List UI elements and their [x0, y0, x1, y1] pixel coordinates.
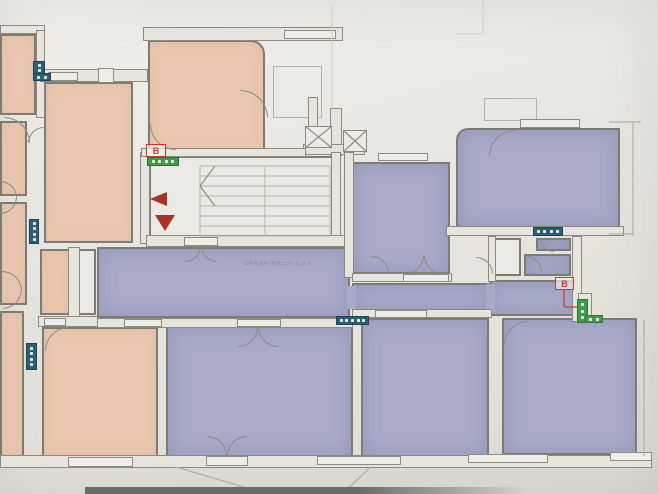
shaft-hatch-1: [305, 126, 332, 148]
shaft-hatch-2: [343, 130, 367, 152]
vent-marker: [585, 315, 603, 323]
window-middle-top: [378, 153, 428, 161]
marker-dot: [30, 347, 33, 350]
radiator-marker: [336, 316, 369, 325]
balcony-top-right: [484, 98, 537, 121]
marker-dot: [33, 233, 36, 236]
marker-dot: [556, 230, 559, 233]
marker-dot: [543, 230, 546, 233]
marker-dot: [30, 358, 33, 361]
marker-dot: [33, 222, 36, 225]
door-gap-stair: [184, 237, 218, 246]
window-corridor-1: [124, 319, 162, 327]
marker-dot: [340, 319, 343, 322]
shaft-left: [78, 249, 96, 315]
room-bottom-2-purple: [361, 318, 489, 457]
corridor-join-2: [486, 284, 495, 312]
marker-dot: [351, 319, 354, 322]
wall-left-shaft: [68, 247, 80, 317]
marker-dot: [38, 69, 41, 72]
marker-dot: [37, 76, 40, 79]
window-topmiddle: [284, 30, 336, 39]
marker-dot: [33, 238, 36, 241]
wall-bath-left: [488, 236, 496, 282]
window-topright: [520, 119, 580, 128]
b-label-right: B: [555, 277, 574, 290]
room-left-4: [0, 311, 24, 458]
room-top-right-purple: [456, 128, 620, 228]
room-top-left-partial: [0, 34, 36, 115]
window-bottom-3: [610, 452, 652, 461]
marker-dot: [152, 160, 155, 163]
door-arc: [2, 289, 22, 309]
wall-stair-right: [331, 152, 341, 238]
radiator-marker: [33, 73, 51, 81]
vent-marker: [147, 157, 179, 166]
door-gap-corridor-b1: [237, 319, 281, 327]
marker-dot: [158, 160, 161, 163]
stair-arrow-down: [155, 215, 175, 231]
marker-dot: [589, 318, 592, 321]
marker-dot: [581, 303, 584, 306]
marker-dot: [581, 316, 584, 319]
window-bottom-pink: [68, 457, 133, 467]
marker-dot: [30, 363, 33, 366]
radiator-marker: [26, 343, 37, 370]
room-bottom-1-purple: [166, 326, 353, 457]
marker-dot: [33, 227, 36, 230]
marker-dot: [357, 319, 360, 322]
door-gap-pink-bottom: [44, 318, 66, 326]
room-main-upper-pink: [44, 82, 133, 243]
window-bottom-1: [317, 456, 401, 465]
wall-stair-bottom: [146, 235, 352, 247]
marker-dot: [30, 352, 33, 355]
marker-dot: [165, 160, 168, 163]
radiator-marker: [29, 219, 39, 244]
door-arc: [28, 127, 44, 143]
wall-middle-left: [344, 152, 354, 278]
radiator-marker: [533, 227, 563, 236]
corridor-main: [97, 247, 350, 318]
corridor-join-1: [347, 286, 356, 309]
marker-dot: [581, 310, 584, 313]
marker-dot: [44, 76, 47, 79]
b-label-stairwell: B: [146, 144, 166, 157]
room-left-lower-pink: [40, 249, 70, 315]
stair-arrow-left: [150, 192, 167, 206]
door-threshold-balcony: [206, 456, 248, 466]
marker-dot: [345, 319, 348, 322]
window-arm-bottom: [375, 310, 427, 318]
window-bottom-2: [468, 454, 548, 463]
marker-dot: [38, 64, 41, 67]
corridor-arm: [352, 283, 492, 311]
marker-dot: [362, 319, 365, 322]
marker-dot: [171, 160, 174, 163]
window-upper-pink-1: [48, 72, 78, 81]
marker-dot: [596, 318, 599, 321]
window-upper-pink-box: [98, 68, 114, 83]
marker-dot: [550, 230, 553, 233]
marker-dot: [537, 230, 540, 233]
corridor-text-label: GRANATRVESF d o 6: [244, 261, 312, 267]
door-gap-middle-room: [403, 274, 449, 282]
bath-shaft: [492, 238, 521, 276]
stairwell: [149, 156, 341, 243]
photo-desk-edge: [85, 487, 525, 494]
floor-plan-canvas: GRANATRVESF d o 6 BB: [0, 0, 658, 494]
